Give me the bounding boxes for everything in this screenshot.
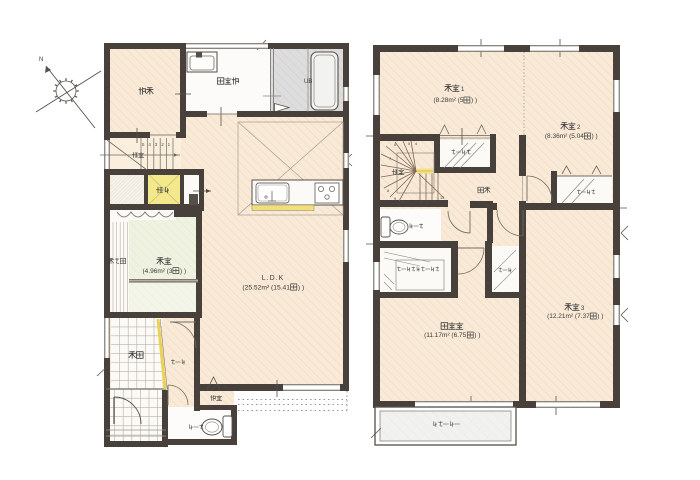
svg-text:(4.96m² (3: (4.96m² (3: [143, 268, 173, 275]
svg-text:(8.36m² (5.04: (8.36m² (5.04: [545, 133, 584, 140]
svg-text:(12.21m² (7.37: (12.21m² (7.37: [547, 313, 590, 320]
svg-text:L.D.K: L.D.K: [262, 275, 285, 282]
svg-text:) ): ) ): [597, 313, 603, 320]
svg-text:(8.28m² (5: (8.28m² (5: [434, 97, 464, 104]
svg-text:10: 10: [401, 199, 406, 204]
svg-text:) ): ) ): [180, 268, 186, 275]
svg-text:(25.52m² (15.41: (25.52m² (15.41: [242, 284, 290, 291]
svg-text:) ): ) ): [592, 133, 598, 140]
svg-text:(11.17m² (6.75: (11.17m² (6.75: [424, 332, 467, 339]
svg-text:14: 14: [440, 195, 445, 200]
svg-text:) ): ) ): [471, 97, 477, 104]
svg-text:N: N: [39, 57, 43, 63]
svg-text:) ): ) ): [474, 332, 480, 339]
svg-text:12: 12: [425, 199, 430, 204]
svg-text:13: 13: [431, 199, 436, 204]
svg-text:UB: UB: [304, 79, 312, 85]
svg-text:) ): ) ): [298, 284, 304, 291]
